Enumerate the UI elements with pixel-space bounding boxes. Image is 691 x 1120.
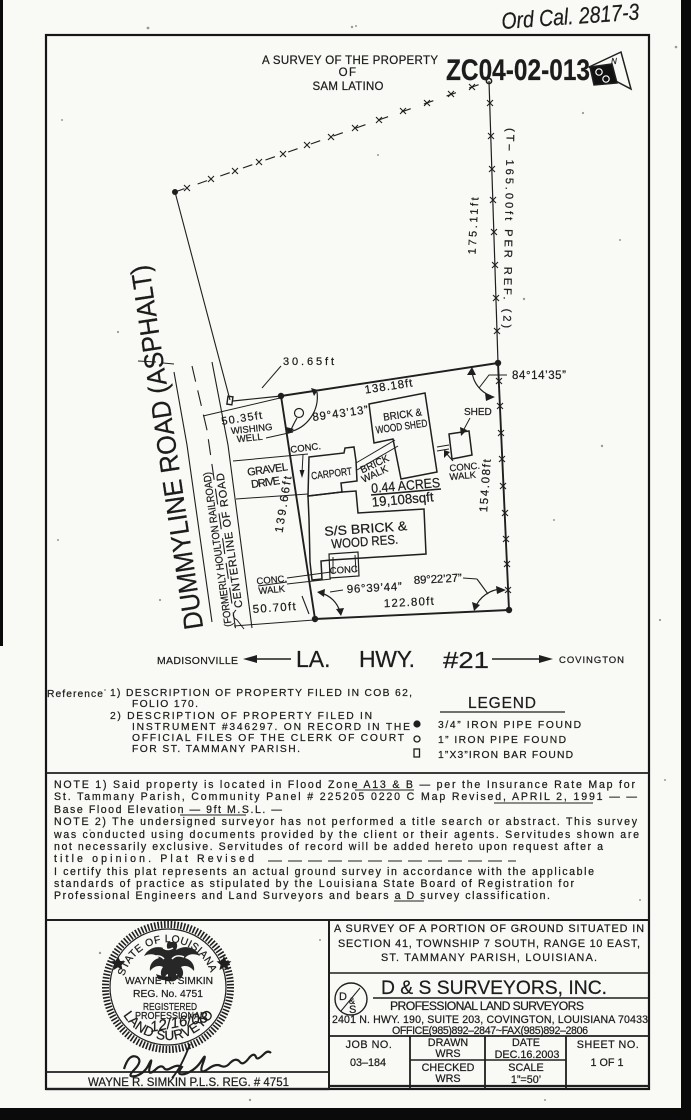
svg-text:WAYNE R. SIMKIN P.L.S. REG: WAYNE R. SIMKIN P.L.S. REG. # 4751 — [88, 1077, 290, 1089]
svg-text:DATE: DATE — [512, 1037, 540, 1049]
svg-text:84°14’35”: 84°14’35” — [512, 370, 566, 382]
svg-text:OF: OF — [339, 67, 358, 79]
svg-text:1” IRON PIPE FOUND: 1” IRON PIPE FOUND — [438, 735, 566, 746]
svg-text:CONC: CONC — [329, 564, 358, 577]
svg-text:FOR ST. TAMMANY PARISH.: FOR ST. TAMMANY PARISH. — [132, 744, 300, 755]
svg-text:SAM LATINO: SAM LATINO — [313, 81, 384, 93]
svg-text:was conducted using documents: was conducted using documents provided b… — [53, 829, 639, 841]
svg-text:1”X3”IRON BAR FOUND: 1”X3”IRON BAR FOUND — [438, 750, 573, 761]
svg-text:NOTE 2) The undersigned survey: NOTE 2) The undersigned surveyor has not… — [54, 816, 638, 828]
svg-text:ST. TAMMANY PARISH, LOUISIANA.: ST. TAMMANY PARISH, LOUISIANA. — [381, 952, 597, 964]
svg-text:#21: #21 — [443, 647, 489, 673]
svg-text:3/4” IRON PIPE FOUND: 3/4” IRON PIPE FOUND — [438, 720, 581, 731]
svg-text:OFFICIAL FILES OF THE CLER: OFFICIAL FILES OF THE CLERK OF COURT — [132, 733, 405, 744]
svg-text:03–184: 03–184 — [350, 1057, 386, 1069]
svg-text:SHED: SHED — [464, 407, 492, 418]
svg-text:DEC.16.2003: DEC.16.2003 — [495, 1049, 560, 1061]
svg-text:Base Flood Elevation — 9ft M.S: Base Flood Elevation — 9ft M.S.L. — — [54, 804, 282, 816]
svg-text:standards of practice as stipu: standards of practice as stipulated by t… — [54, 878, 574, 890]
svg-text:HWY.: HWY. — [359, 646, 415, 672]
svg-text:D: D — [339, 991, 347, 1003]
svg-text:JOB NO.: JOB NO. — [346, 1039, 393, 1051]
svg-text:89°22’27”: 89°22’27” — [414, 572, 463, 587]
svg-text:MADISONVILLE: MADISONVILLE — [157, 655, 238, 667]
svg-text:not necessarily exclusive. Ser: not necessarily exclusive. Servitudes of… — [54, 841, 603, 853]
svg-text:1”=50’: 1”=50’ — [511, 1074, 541, 1086]
svg-text:REG. No. 4751: REG. No. 4751 — [133, 988, 203, 1000]
svg-text:SCALE: SCALE — [508, 1062, 543, 1074]
svg-text:SECTION 41, TOWNSHIP 7 SOUTH,: SECTION 41, TOWNSHIP 7 SOUTH, RANGE 10 E… — [338, 938, 640, 950]
svg-text:N: N — [611, 57, 617, 66]
svg-text:WRS: WRS — [435, 1048, 460, 1060]
svg-text:A SURVEY OF THE PROPERTY: A SURVEY OF THE PROPERTY — [262, 55, 438, 67]
svg-text:SHEET NO.: SHEET NO. — [577, 1039, 640, 1051]
svg-text:D & S SURVEYORS, INC.: D & S SURVEYORS, INC. — [381, 977, 607, 999]
svg-text:LEGEND: LEGEND — [468, 695, 536, 712]
svg-text:INSTRUMENT #346297. ON RECO: INSTRUMENT #346297. ON RECORD IN THE — [132, 722, 410, 733]
svg-text:1) DESCRIPTION OF PROPERTY: 1) DESCRIPTION OF PROPERTY FILED IN COB … — [110, 688, 412, 699]
svg-text:ZC04-02-013: ZC04-02-013 — [446, 54, 590, 87]
svg-text:Professional Engineers and Lan: Professional Engineers and Land Surveyor… — [54, 890, 550, 902]
svg-text:WAYNE R. SIMKIN: WAYNE R. SIMKIN — [125, 975, 213, 987]
svg-text:A SURVEY OF A PORTION OF GROUN: A SURVEY OF A PORTION OF GROUND SITUATED… — [334, 923, 644, 935]
svg-text:2) DESCRIPTION OF PROPERTY: 2) DESCRIPTION OF PROPERTY FILED IN — [110, 711, 372, 722]
svg-text:Reference: Reference — [47, 689, 103, 700]
svg-text:COVINGTON: COVINGTON — [559, 655, 624, 666]
svg-text:LA.: LA. — [296, 646, 331, 672]
svg-text:1 OF 1: 1 OF 1 — [590, 1057, 623, 1069]
svg-text:FOLIO 170.: FOLIO 170. — [132, 699, 198, 710]
svg-text:I certify this plat represents: I certify this plat represents an actual… — [54, 866, 594, 878]
svg-text:WRS: WRS — [435, 1073, 460, 1085]
svg-text:PROFESSIONAL LAND SURVEYORS: PROFESSIONAL LAND SURVEYORS — [390, 999, 584, 1013]
